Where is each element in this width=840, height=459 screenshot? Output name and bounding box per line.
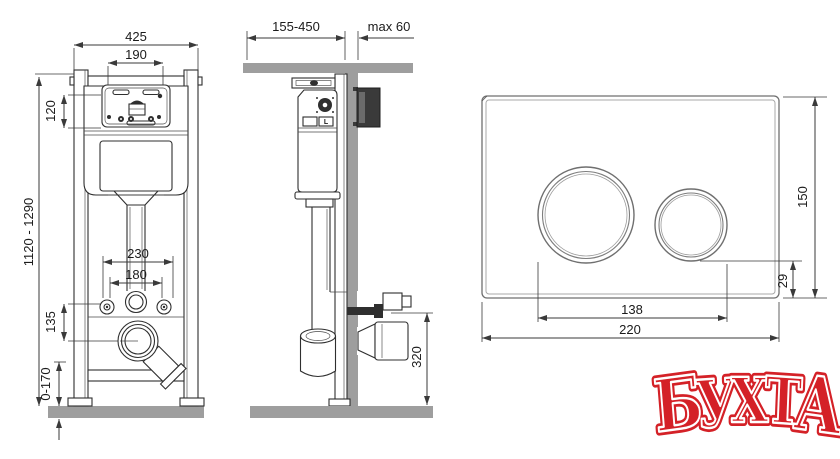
- dim-width-total: 425: [125, 29, 147, 44]
- fixing-points: [100, 292, 171, 315]
- foot-right: [180, 398, 204, 406]
- dim-opening-width: 190: [125, 47, 147, 62]
- dim-panel-height: 120: [43, 100, 58, 122]
- dim-button-bottom-offset: 29: [775, 274, 790, 288]
- dim-button-span: 138: [621, 302, 643, 317]
- dim-outlet-height: 320: [409, 346, 424, 368]
- front-view: 425 190 120 1120 - 1290 230 180 135 0-17…: [21, 29, 204, 440]
- installation-frame-drawing: 425 190 120 1120 - 1290 230 180 135 0-17…: [0, 0, 840, 459]
- valve-label: L: [324, 119, 329, 126]
- dim-drain-offset: 135: [43, 311, 58, 333]
- dim-plate-height: 150: [795, 186, 810, 208]
- top-rail: [243, 63, 413, 73]
- foot-left: [68, 398, 92, 406]
- dim-depth-range: 155-450: [272, 19, 320, 34]
- drain-elbow: [301, 329, 336, 377]
- dim-fixing-span-outer: 230: [127, 246, 149, 261]
- watermark-logo: Б У Х Т А Б У Х Т А: [651, 358, 840, 453]
- wall-bracket-block: [353, 87, 380, 127]
- dim-foot-adjust: 0-170: [38, 367, 53, 400]
- dim-frame-height-range: 1120 - 1290: [21, 198, 36, 266]
- watermark-letter: А: [791, 358, 840, 453]
- dim-plate-width: 220: [619, 322, 641, 337]
- top-bracket: [292, 78, 335, 88]
- watermark-text-layer: Б У Х Т А: [651, 358, 840, 453]
- foot-side: [329, 399, 350, 406]
- flush-plate-view: 138 220 150 29: [482, 96, 827, 342]
- floor-middle: [250, 406, 433, 418]
- side-view: L: [243, 19, 433, 418]
- dim-fixing-span-inner: 180: [125, 267, 147, 282]
- technical-drawing-page: 425 190 120 1120 - 1290 230 180 135 0-17…: [0, 0, 840, 459]
- dim-wall-max: max 60: [368, 19, 411, 34]
- floor-left: [48, 406, 204, 418]
